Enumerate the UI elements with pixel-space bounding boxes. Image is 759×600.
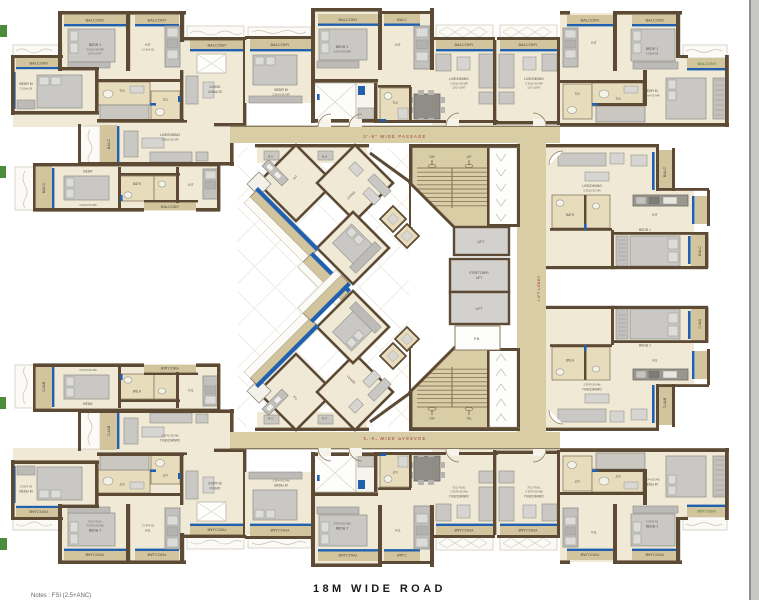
svg-text:LIVE/DINING: LIVE/DINING: [449, 77, 469, 81]
svg-text:KIT: KIT: [591, 41, 596, 45]
svg-text:BALCONY: BALCONY: [338, 17, 357, 22]
svg-text:BALCONY: BALCONY: [270, 42, 289, 47]
svg-text:STRETCHER: STRETCHER: [469, 271, 489, 275]
svg-text:11'0"x19'6": 11'0"x19'6": [527, 86, 541, 90]
svg-text:LIVE/DINING: LIVE/DINING: [160, 133, 181, 137]
svg-text:BEDR 1: BEDR 1: [336, 45, 348, 49]
svg-text:TOI: TOI: [574, 92, 579, 96]
svg-text:BEDR 1: BEDR 1: [89, 43, 101, 47]
svg-text:KIT: KIT: [188, 183, 193, 187]
svg-text:BALC: BALC: [397, 18, 407, 22]
svg-text:UP: UP: [467, 155, 472, 159]
svg-text:LIFT LOBBY: LIFT LOBBY: [537, 275, 541, 300]
svg-text:BALC: BALC: [41, 183, 46, 194]
svg-text:2.15x4.50: 2.15x4.50: [142, 48, 155, 52]
svg-text:3.30x4.05 MR: 3.30x4.05 MR: [272, 93, 289, 97]
svg-text:BEDR M: BEDR M: [274, 88, 287, 92]
svg-text:18M WIDE ROAD: 18M WIDE ROAD: [313, 583, 446, 595]
svg-text:KIT: KIT: [395, 43, 400, 47]
svg-text:LIVING: LIVING: [209, 85, 220, 89]
svg-text:TOI: TOI: [162, 98, 167, 102]
svg-text:LIVE/DINING: LIVE/DINING: [524, 77, 544, 81]
svg-text:BALCONY: BALCONY: [697, 61, 716, 66]
svg-text:2'-6" WIDE PASSAGE: 2'-6" WIDE PASSAGE: [364, 134, 427, 139]
svg-text:BALCONY: BALCONY: [161, 205, 180, 209]
svg-text:B.U.: B.U.: [268, 155, 274, 159]
svg-text:LIFT: LIFT: [478, 240, 485, 244]
svg-text:BALC: BALC: [698, 246, 702, 256]
svg-text:3.35x5.95 MR: 3.35x5.95 MR: [583, 189, 600, 193]
svg-text:10'0"x14'9": 10'0"x14'9": [88, 52, 102, 56]
svg-text:BATH: BATH: [133, 182, 142, 186]
svg-text:3.05x4.20: 3.05x4.20: [208, 90, 222, 94]
svg-text:BALCONY: BALCONY: [29, 61, 48, 66]
svg-text:KIT: KIT: [145, 43, 150, 47]
svg-text:BALCONY: BALCONY: [580, 18, 599, 23]
svg-text:BEDR: BEDR: [83, 170, 93, 174]
svg-text:TOI: TOI: [119, 89, 124, 93]
svg-text:P.B.: P.B.: [474, 337, 480, 341]
svg-text:3.35x5.95 MR: 3.35x5.95 MR: [161, 138, 178, 142]
svg-text:BALCONY: BALCONY: [147, 18, 166, 23]
svg-text:BALC: BALC: [662, 167, 667, 178]
svg-text:3.05x4.50 MR: 3.05x4.50 MR: [79, 203, 96, 207]
svg-text:LIVE/DINING: LIVE/DINING: [582, 184, 602, 188]
svg-text:LIFT: LIFT: [476, 276, 483, 280]
svg-text:TOI: TOI: [392, 101, 397, 105]
svg-text:3.05x4.50 MR: 3.05x4.50 MR: [333, 50, 350, 54]
svg-text:BATH: BATH: [566, 213, 575, 217]
svg-text:TOI: TOI: [615, 97, 620, 101]
svg-text:11'0"x19'6": 11'0"x19'6": [452, 86, 466, 90]
svg-text:BALC: BALC: [106, 139, 111, 150]
svg-text:BEDR 1: BEDR 1: [646, 47, 658, 51]
svg-text:BEDR M: BEDR M: [19, 82, 32, 86]
svg-text:LIFT: LIFT: [476, 307, 483, 311]
svg-text:Notes : FSI (2.5+ANC): Notes : FSI (2.5+ANC): [31, 593, 91, 599]
svg-text:DN: DN: [430, 155, 435, 159]
svg-text:BALCONY: BALCONY: [85, 18, 104, 23]
svg-text:BALCONY: BALCONY: [207, 43, 226, 48]
svg-text:BALCONY: BALCONY: [645, 18, 664, 23]
svg-text:BEDR 1: BEDR 1: [639, 228, 651, 232]
svg-text:BALCONY: BALCONY: [454, 42, 473, 47]
svg-text:KIT: KIT: [652, 213, 657, 217]
svg-text:3.30x4.05: 3.30x4.05: [20, 87, 33, 91]
svg-text:B.U.: B.U.: [322, 155, 328, 159]
svg-text:BALCONY: BALCONY: [518, 42, 537, 47]
svg-text:3.05x4.50: 3.05x4.50: [646, 52, 659, 56]
